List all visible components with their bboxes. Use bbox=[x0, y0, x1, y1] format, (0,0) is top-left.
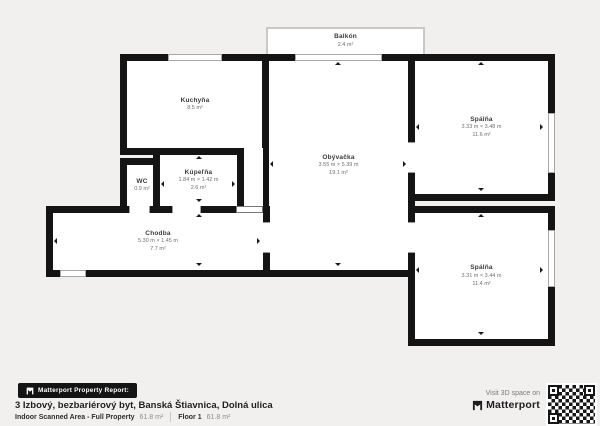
dimension-arrow-icon bbox=[403, 161, 406, 167]
report-badge-label: Matterport Property Report: bbox=[38, 387, 129, 394]
report-badge: Matterport Property Report: bbox=[18, 383, 137, 398]
room-dimensions: 3.31 m × 3.44 m bbox=[462, 273, 502, 281]
window bbox=[548, 230, 555, 287]
door-opening bbox=[408, 222, 415, 253]
room-area: 7.7 m² bbox=[150, 246, 166, 254]
meta-divider bbox=[170, 412, 171, 422]
scanned-area-label: Indoor Scanned Area - Full Property bbox=[15, 414, 135, 421]
room-dimensions: 1.84 m × 1.42 m bbox=[179, 177, 219, 185]
qr-finder-icon bbox=[548, 413, 559, 424]
dimension-arrow-icon bbox=[54, 238, 57, 244]
room-area: 2.4 m² bbox=[338, 42, 354, 50]
matterport-logo-icon bbox=[26, 387, 34, 395]
room-area: 11.6 m² bbox=[472, 132, 490, 140]
dimension-arrow-icon bbox=[478, 214, 484, 217]
room-dimensions: 3.33 m × 3.48 m bbox=[462, 124, 502, 132]
passage bbox=[244, 148, 263, 206]
room-name: Spálňa bbox=[470, 115, 493, 125]
door-opening bbox=[172, 206, 201, 213]
room-area: 19.1 m² bbox=[329, 170, 348, 178]
room-name: Spálňa bbox=[470, 263, 493, 273]
dimension-arrow-icon bbox=[540, 124, 543, 130]
room-chodba: Chodba 5.30 m × 1.45 m 7.7 m² bbox=[46, 206, 270, 277]
doorway-marker bbox=[236, 206, 263, 213]
visit-3d-block: Visit 3D space on Matterport bbox=[472, 390, 540, 411]
dimension-arrow-icon bbox=[232, 181, 235, 187]
dimension-arrow-icon bbox=[416, 124, 419, 130]
dimension-arrow-icon bbox=[478, 332, 484, 335]
dimension-arrow-icon bbox=[257, 238, 260, 244]
floor-plan: Balkón 2.4 m² Kuchyňa 8.5 m² Obývačka 3.… bbox=[0, 0, 600, 426]
qr-pattern bbox=[548, 385, 595, 424]
property-meta: Indoor Scanned Area - Full Property 61.8… bbox=[15, 412, 230, 422]
room-area: 11.4 m² bbox=[472, 281, 490, 289]
dimension-arrow-icon bbox=[196, 214, 202, 217]
floor-label: Floor 1 bbox=[178, 414, 201, 421]
dimension-arrow-icon bbox=[196, 263, 202, 266]
window bbox=[295, 54, 382, 61]
floor-value: 61.8 m² bbox=[207, 414, 231, 421]
room-name: Obývačka bbox=[322, 153, 354, 163]
dimension-arrow-icon bbox=[161, 181, 164, 187]
window bbox=[168, 54, 222, 61]
door-opening bbox=[263, 222, 270, 253]
qr-finder-icon bbox=[548, 385, 559, 396]
window bbox=[60, 270, 86, 277]
room-dimensions: 5.30 m × 1.45 m bbox=[138, 238, 178, 246]
dimension-arrow-icon bbox=[270, 161, 273, 167]
room-spalna-top: Spálňa 3.33 m × 3.48 m 11.6 m² bbox=[408, 54, 555, 201]
door-opening bbox=[129, 206, 150, 213]
visit-3d-text: Visit 3D space on bbox=[472, 390, 540, 397]
door-opening bbox=[408, 142, 415, 173]
room-name: Kuchyňa bbox=[181, 96, 210, 106]
dimension-arrow-icon bbox=[196, 199, 202, 202]
dimension-arrow-icon bbox=[335, 263, 341, 266]
scanned-area-value: 61.8 m² bbox=[140, 414, 164, 421]
matterport-brand-text: Matterport bbox=[486, 399, 540, 411]
dimension-arrow-icon bbox=[478, 62, 484, 65]
room-area: 0.9 m² bbox=[134, 186, 150, 194]
dimension-arrow-icon bbox=[478, 188, 484, 191]
room-name: Balkón bbox=[334, 32, 357, 42]
dimension-arrow-icon bbox=[196, 156, 202, 159]
dimension-arrow-icon bbox=[335, 62, 341, 65]
dimension-arrow-icon bbox=[540, 267, 543, 273]
qr-code bbox=[546, 383, 597, 426]
window bbox=[548, 113, 555, 173]
dimension-arrow-icon bbox=[416, 267, 419, 273]
room-obyvacka: Obývačka 3.55 m × 5.39 m 19.1 m² bbox=[262, 54, 415, 277]
room-spalna-bottom: Spálňa 3.31 m × 3.44 m 11.4 m² bbox=[408, 206, 555, 346]
qr-finder-icon bbox=[584, 385, 595, 396]
room-name: Kúpeľňa bbox=[185, 168, 213, 178]
room-name: WC bbox=[136, 177, 147, 187]
room-kuchyna: Kuchyňa 8.5 m² bbox=[120, 54, 270, 155]
property-title: 3 Izbový, bezbariérový byt, Banská Štiav… bbox=[15, 400, 273, 411]
room-area: 8.5 m² bbox=[187, 105, 203, 113]
room-dimensions: 3.55 m × 5.39 m bbox=[319, 162, 359, 170]
room-name: Chodba bbox=[145, 229, 170, 239]
room-area: 2.6 m² bbox=[191, 185, 207, 193]
matterport-logo-icon bbox=[472, 400, 483, 411]
